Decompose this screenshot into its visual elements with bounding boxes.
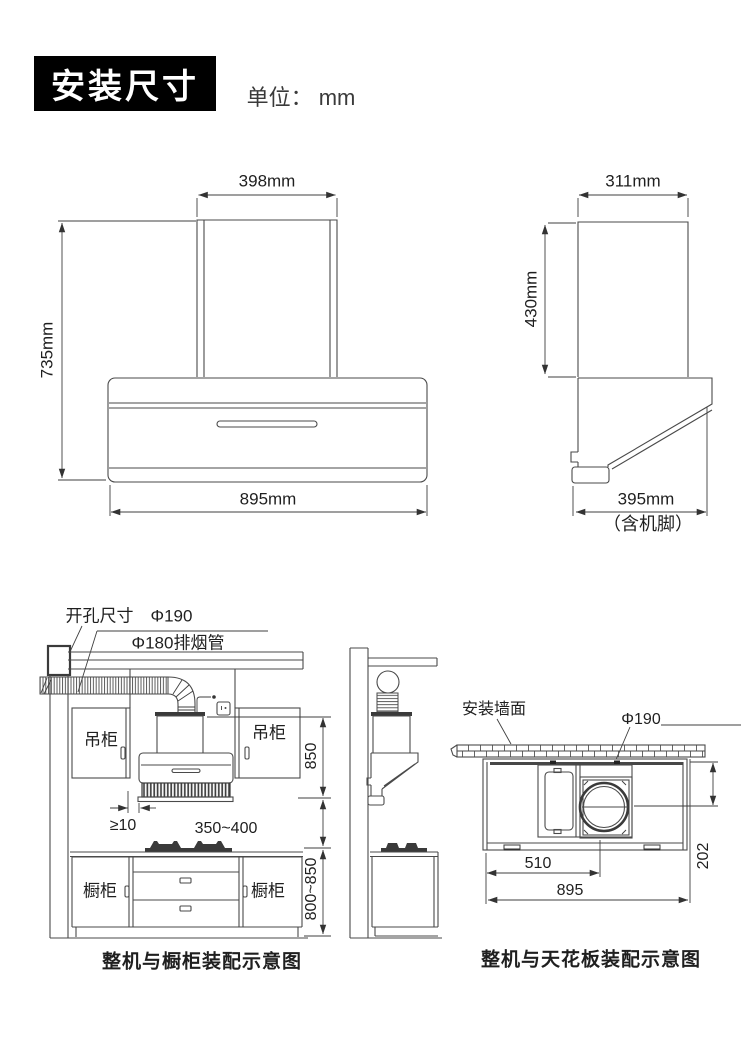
dim-510: 510 xyxy=(525,856,552,872)
dim-735: 735mm xyxy=(39,322,56,379)
hood-foot-side xyxy=(572,467,609,483)
duct-elbow-side xyxy=(377,671,399,693)
wall-surface-label: 安装墙面 xyxy=(462,702,526,718)
duct-side xyxy=(377,693,398,712)
exhaust-duct xyxy=(40,677,168,694)
hood-grille xyxy=(142,783,230,797)
base-cabinet-right-label: 橱柜 xyxy=(251,883,285,900)
hood-chimney-small xyxy=(157,716,203,753)
power-outlet xyxy=(217,702,230,715)
power-plug xyxy=(212,695,216,699)
upper-cabinet-right xyxy=(235,708,300,778)
dim-gap-min: ≥10 xyxy=(110,818,137,834)
dim-395-note: （含机脚） xyxy=(603,515,693,533)
front-view-drawing xyxy=(58,195,427,516)
wall-column xyxy=(50,675,68,938)
outlet-diameter-label: Φ190 xyxy=(621,712,660,728)
base-cabinet-left-label: 橱柜 xyxy=(83,883,117,900)
hood-collar xyxy=(155,712,205,716)
hood-body-small xyxy=(139,753,233,783)
dim-350-400: 350~400 xyxy=(195,821,258,837)
installation-dimensions-page: 安装尺寸 单位： mm 398mm 735mm 895mm 311mm 430m… xyxy=(0,0,750,1050)
ceiling-view-caption: 整机与天花板装配示意图 xyxy=(481,951,701,970)
side-install-drawing xyxy=(350,648,442,938)
wall-hole-box xyxy=(48,646,70,675)
ceiling-board xyxy=(68,652,303,669)
hood-chimney-front xyxy=(197,220,337,377)
dim-895-front: 895mm xyxy=(240,491,297,508)
duct-label: Φ180排烟管 xyxy=(132,635,225,652)
unit-label: 单位： mm xyxy=(247,80,356,112)
upper-cabinet-right-label: 吊柜 xyxy=(252,725,286,742)
hole-size-label: 开孔尺寸 Φ190 xyxy=(66,608,193,625)
machine-top-view xyxy=(483,759,687,850)
hood-profile-side xyxy=(367,753,418,796)
section-title-box: 安装尺寸 xyxy=(34,56,216,111)
dim-202: 202 xyxy=(696,843,712,870)
dim-800-850: 800~850 xyxy=(304,858,320,921)
dim-850: 850 xyxy=(304,743,320,770)
hood-body-front xyxy=(108,378,427,482)
dim-895-top: 895 xyxy=(557,883,584,899)
dim-398: 398mm xyxy=(239,173,296,190)
cabinet-view-caption: 整机与橱柜装配示意图 xyxy=(102,953,302,972)
side-view-drawing xyxy=(545,195,712,516)
dim-311: 311mm xyxy=(605,173,660,190)
drawer-unit xyxy=(133,872,239,900)
dim-430: 430mm xyxy=(523,271,540,328)
dim-395: 395mm xyxy=(618,491,675,508)
ceiling-assembly-drawing xyxy=(451,719,741,904)
hood-chimney-side xyxy=(578,222,688,377)
wall-side xyxy=(350,648,368,938)
hood-body-side xyxy=(571,378,712,469)
hood-lip xyxy=(138,797,233,802)
gas-stove xyxy=(145,848,232,852)
section-title: 安装尺寸 xyxy=(51,59,199,108)
upper-cabinet-left-label: 吊柜 xyxy=(84,732,118,749)
stove-side xyxy=(381,848,427,852)
